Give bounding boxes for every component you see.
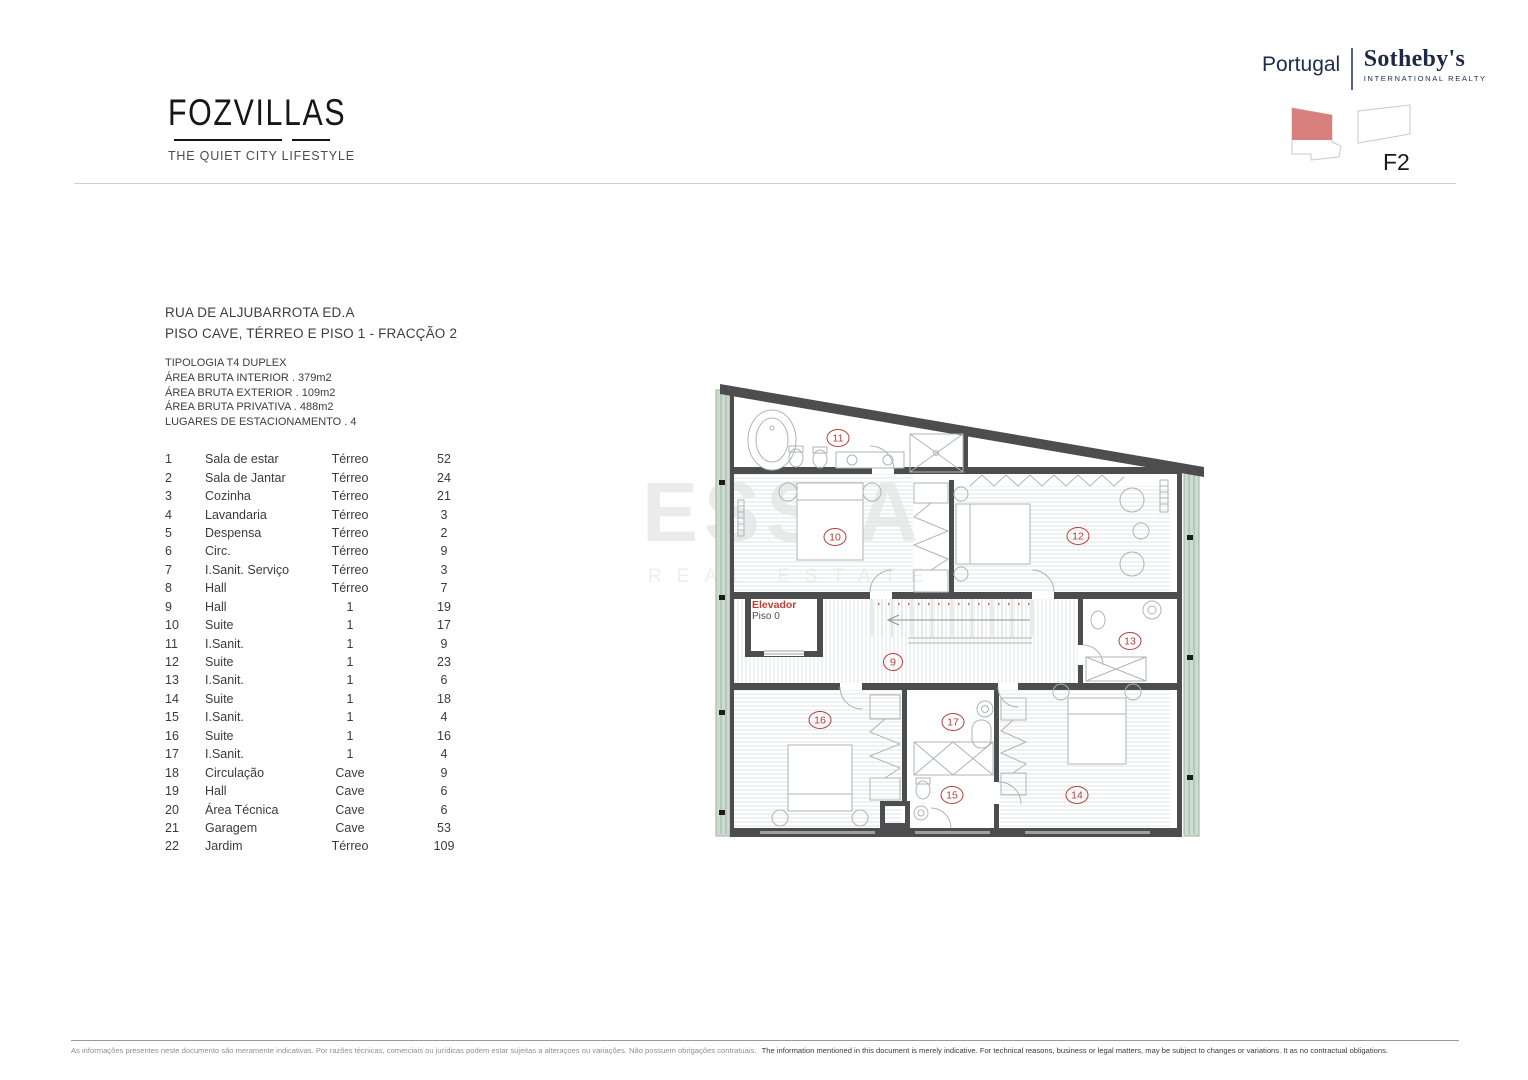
- unit-locator-minimap: F2: [1280, 96, 1420, 180]
- room-area: 53: [395, 821, 493, 835]
- sothebys-subtitle: INTERNATIONAL REALTY: [1364, 74, 1487, 83]
- room-number: 2: [165, 471, 205, 485]
- room-name: I.Sanit. Serviço: [205, 563, 305, 577]
- room-name: Circ.: [205, 544, 305, 558]
- disclaimer-en: The information mentioned in this docume…: [762, 1046, 1388, 1055]
- logo-underline-right: [292, 139, 330, 141]
- address-line-2: PISO CAVE, TÉRREO E PISO 1 - FRACÇÃO 2: [165, 323, 457, 344]
- unit-code-label: F2: [1383, 149, 1410, 175]
- elevator: Elevador Piso 0: [748, 596, 820, 656]
- table-row: 5 Despensa Térreo 2: [165, 524, 495, 542]
- room-floor: 1: [305, 692, 395, 706]
- room-name: Suite: [205, 729, 305, 743]
- table-row: 19 Hall Cave 6: [165, 782, 495, 800]
- fraction-outline-icon: [1358, 105, 1410, 143]
- room-number: 16: [165, 729, 205, 743]
- sothebys-logo: Portugal Sotheby's INTERNATIONAL REALTY: [1262, 46, 1487, 90]
- svg-text:16: 16: [814, 715, 826, 727]
- table-row: 15 I.Sanit. 1 4: [165, 708, 495, 726]
- svg-text:14: 14: [1071, 790, 1083, 802]
- room-area: 23: [395, 655, 493, 669]
- room-floor: Térreo: [305, 839, 395, 853]
- room-area: 4: [395, 710, 493, 724]
- room-floor: Térreo: [305, 544, 395, 558]
- table-row: 16 Suite 1 16: [165, 727, 495, 745]
- svg-text:13: 13: [1124, 636, 1136, 648]
- room-floor: 1: [305, 618, 395, 632]
- room-name: Circulação: [205, 766, 305, 780]
- room-name: Suite: [205, 618, 305, 632]
- floor-plan: Elevador Piso 0: [700, 380, 1210, 845]
- room-area: 17: [395, 618, 493, 632]
- room-floor: 1: [305, 729, 395, 743]
- room-floor: 1: [305, 655, 395, 669]
- room-floor: Cave: [305, 784, 395, 798]
- room-number: 10: [165, 618, 205, 632]
- room-area: 3: [395, 563, 493, 577]
- room-area: 9: [395, 637, 493, 651]
- room-floor: Térreo: [305, 489, 395, 503]
- room-area: 109: [395, 839, 493, 853]
- room-floor: Térreo: [305, 508, 395, 522]
- fozvillas-logo: FOZVILLAS THE QUIET CITY LIFESTYLE: [168, 92, 388, 163]
- room-floor: Cave: [305, 803, 395, 817]
- table-row: 1 Sala de estar Térreo 52: [165, 450, 495, 468]
- room-number: 15: [165, 710, 205, 724]
- table-row: 21 Garagem Cave 53: [165, 819, 495, 837]
- room-name: Hall: [205, 581, 305, 595]
- room-label-15: 15: [941, 787, 963, 804]
- header-divider: [74, 183, 1456, 184]
- room-number: 20: [165, 803, 205, 817]
- window-segments: [760, 831, 1150, 834]
- room-label-11: 11: [827, 430, 849, 447]
- unit-highlight-icon: [1292, 108, 1332, 140]
- detail-line: ÁREA BRUTA EXTERIOR . 109m2: [165, 386, 357, 401]
- room-area: 9: [395, 544, 493, 558]
- room-floor: 1: [305, 747, 395, 761]
- room-name: Suite: [205, 692, 305, 706]
- room-name: Despensa: [205, 526, 305, 540]
- table-row: 3 Cozinha Térreo 21: [165, 487, 495, 505]
- room-number: 21: [165, 821, 205, 835]
- room-number: 19: [165, 784, 205, 798]
- room-number: 5: [165, 526, 205, 540]
- room-floor: Térreo: [305, 581, 395, 595]
- room-number: 14: [165, 692, 205, 706]
- room-floor: Térreo: [305, 563, 395, 577]
- room-floor: Cave: [305, 821, 395, 835]
- table-row: 9 Hall 1 19: [165, 598, 495, 616]
- room-area: 19: [395, 600, 493, 614]
- room-area: 3: [395, 508, 493, 522]
- room-floor: 1: [305, 673, 395, 687]
- room-number: 12: [165, 655, 205, 669]
- room-area: 2: [395, 526, 493, 540]
- room-area: 6: [395, 803, 493, 817]
- svg-text:12: 12: [1072, 531, 1084, 543]
- room-name: Hall: [205, 784, 305, 798]
- room-area: 24: [395, 471, 493, 485]
- room-label-13: 13: [1119, 633, 1141, 650]
- room-area: 6: [395, 784, 493, 798]
- disclaimer-pt: As informações presentes neste documento…: [71, 1046, 756, 1055]
- table-row: 2 Sala de Jantar Térreo 24: [165, 468, 495, 486]
- room-floor: Térreo: [305, 452, 395, 466]
- table-row: 13 I.Sanit. 1 6: [165, 671, 495, 689]
- brochure-page: FOZVILLAS THE QUIET CITY LIFESTYLE Portu…: [0, 0, 1528, 1080]
- room-number: 18: [165, 766, 205, 780]
- room-area: 21: [395, 489, 493, 503]
- room-number: 11: [165, 637, 205, 651]
- listing-details: TIPOLOGIA T4 DUPLEX ÁREA BRUTA INTERIOR …: [165, 356, 357, 430]
- room-name: Sala de Jantar: [205, 471, 305, 485]
- room-number: 1: [165, 452, 205, 466]
- room-name: Cozinha: [205, 489, 305, 503]
- room-floor: 1: [305, 637, 395, 651]
- room-floor: 1: [305, 710, 395, 724]
- room-floor: Térreo: [305, 471, 395, 485]
- table-row: 20 Área Técnica Cave 6: [165, 800, 495, 818]
- svg-text:17: 17: [947, 717, 959, 729]
- room-name: Área Técnica: [205, 803, 305, 817]
- logo-divider: [1351, 48, 1353, 90]
- room-name: I.Sanit.: [205, 637, 305, 651]
- room-number: 22: [165, 839, 205, 853]
- room-floor: 1: [305, 600, 395, 614]
- listing-address: RUA DE ALJUBARROTA ED.A PISO CAVE, TÉRRE…: [165, 302, 457, 344]
- elevator-floor-label: Piso 0: [752, 611, 780, 622]
- table-row: 7 I.Sanit. Serviço Térreo 3: [165, 561, 495, 579]
- table-row: 6 Circ. Térreo 9: [165, 542, 495, 560]
- room-number: 9: [165, 600, 205, 614]
- table-row: 14 Suite 1 18: [165, 690, 495, 708]
- svg-text:11: 11: [833, 433, 844, 445]
- room-number: 6: [165, 544, 205, 558]
- room-area: 6: [395, 673, 493, 687]
- sothebys-name: Sotheby's: [1364, 46, 1487, 73]
- sothebys-region: Portugal: [1262, 53, 1340, 90]
- brand-tagline: THE QUIET CITY LIFESTYLE: [168, 149, 388, 163]
- room-number: 4: [165, 508, 205, 522]
- table-row: 11 I.Sanit. 1 9: [165, 634, 495, 652]
- room-name: Hall: [205, 600, 305, 614]
- room-name: I.Sanit.: [205, 747, 305, 761]
- room-area: 16: [395, 729, 493, 743]
- room-floor: Térreo: [305, 526, 395, 540]
- room-label-17: 17: [942, 714, 964, 731]
- fozvillas-wordmark: FOZVILLAS: [168, 92, 348, 134]
- logo-underline-left: [174, 139, 282, 141]
- room-name: Suite: [205, 655, 305, 669]
- room-area: 52: [395, 452, 493, 466]
- svg-text:9: 9: [890, 657, 896, 669]
- room-name: Sala de estar: [205, 452, 305, 466]
- disclaimer: As informações presentes neste documento…: [71, 1046, 1463, 1055]
- detail-line: ÁREA BRUTA INTERIOR . 379m2: [165, 371, 357, 386]
- room-number: 8: [165, 581, 205, 595]
- room-number: 17: [165, 747, 205, 761]
- table-row: 10 Suite 1 17: [165, 616, 495, 634]
- svg-text:15: 15: [946, 790, 958, 802]
- room-number: 13: [165, 673, 205, 687]
- svg-text:10: 10: [829, 532, 841, 544]
- room-floor: Cave: [305, 766, 395, 780]
- room-area: 9: [395, 766, 493, 780]
- room-name: I.Sanit.: [205, 673, 305, 687]
- footer-divider: [71, 1040, 1459, 1041]
- room-name: I.Sanit.: [205, 710, 305, 724]
- table-row: 12 Suite 1 23: [165, 653, 495, 671]
- detail-line: ÁREA BRUTA PRIVATIVA . 488m2: [165, 400, 357, 415]
- detail-line: TIPOLOGIA T4 DUPLEX: [165, 356, 357, 371]
- table-row: 8 Hall Térreo 7: [165, 579, 495, 597]
- elevator-label: Elevador: [752, 599, 796, 611]
- table-row: 22 Jardim Térreo 109: [165, 837, 495, 855]
- address-line-1: RUA DE ALJUBARROTA ED.A: [165, 302, 457, 323]
- room-number: 7: [165, 563, 205, 577]
- table-row: 18 Circulação Cave 9: [165, 763, 495, 781]
- room-area: 18: [395, 692, 493, 706]
- room-number: 3: [165, 489, 205, 503]
- room-name: Lavandaria: [205, 508, 305, 522]
- table-row: 4 Lavandaria Térreo 3: [165, 505, 495, 523]
- detail-line: LUGARES DE ESTACIONAMENTO . 4: [165, 415, 357, 430]
- room-area: 4: [395, 747, 493, 761]
- room-name: Jardim: [205, 839, 305, 853]
- table-row: 17 I.Sanit. 1 4: [165, 745, 495, 763]
- rooms-table: 1 Sala de estar Térreo 52 2 Sala de Jant…: [165, 450, 495, 856]
- room-area: 7: [395, 581, 493, 595]
- room-name: Garagem: [205, 821, 305, 835]
